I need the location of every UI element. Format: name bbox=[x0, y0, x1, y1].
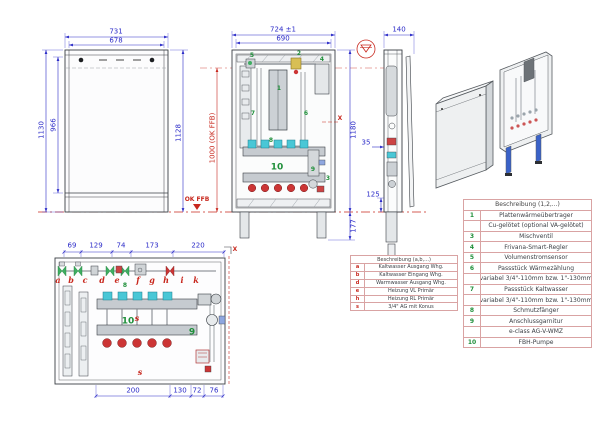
dim-side-bottom: 125 bbox=[366, 192, 379, 199]
datum-label-ok-ffb: OK FFB bbox=[185, 197, 210, 203]
datum-symbol-icon bbox=[357, 40, 375, 58]
port-letter-d: d bbox=[99, 276, 105, 284]
side-view-linework bbox=[384, 50, 414, 260]
port-letter-a: a bbox=[55, 276, 60, 284]
part-label-4: 4 bbox=[320, 57, 324, 63]
plan-part-label-8: 8 bbox=[123, 283, 127, 289]
legend-number-row: 9Anschlussgarnitur bbox=[464, 315, 591, 326]
iso-closed-cabinet bbox=[436, 81, 493, 188]
legend-number-row: 1Plattenwärmeübertrager bbox=[464, 210, 591, 221]
legend-letter-row: aKaltwasser Ausgang Whg. bbox=[351, 263, 457, 271]
plan-s-label-1: s bbox=[135, 314, 140, 322]
port-letter-e: e bbox=[114, 276, 119, 284]
front-view-linework bbox=[65, 50, 168, 212]
legend-letter-row: eHeizung VL Primär bbox=[351, 287, 457, 295]
dim-plan-top-2: 129 bbox=[89, 243, 102, 250]
dim-plan-bottom-1: 200 bbox=[126, 388, 139, 395]
legend-letter-row: s3/4" AG mit Konus bbox=[351, 302, 457, 310]
part-label-5: 5 bbox=[250, 53, 254, 59]
legend-number-row: Cu-gelötet (optional VA-gelötet) bbox=[464, 220, 591, 231]
plan-s-label-2: s bbox=[138, 368, 143, 376]
part-label-6: 6 bbox=[304, 111, 308, 117]
part-label-3: 3 bbox=[326, 176, 330, 182]
dim-open-width-outer: 724 ±1 bbox=[270, 27, 296, 34]
dim-side-offset: 35 bbox=[362, 140, 371, 147]
section-x-label-plan: X bbox=[233, 247, 238, 253]
part-label-7: 7 bbox=[251, 111, 255, 117]
dim-plan-bottom-3: 72 bbox=[193, 388, 202, 395]
legend-number-row: 6Passstück Wärmezählung bbox=[464, 262, 591, 273]
legend-letters-title: Beschreibung (a,b,...) bbox=[351, 256, 457, 263]
dim-front-height-inner: 966 bbox=[51, 118, 58, 131]
legend-number-row: 7Passstück Kaltwasser bbox=[464, 284, 591, 295]
dim-plan-top-1: 69 bbox=[68, 243, 77, 250]
port-letter-i: i bbox=[180, 276, 183, 284]
legend-number-row: variabel 3/4"-110mm bzw. 1"-130mm bbox=[464, 294, 591, 305]
legend-number-row: 8Schmutzfänger bbox=[464, 305, 591, 316]
legend-number-row: 10FBH-Pumpe bbox=[464, 337, 591, 348]
dim-plan-top-4: 173 bbox=[145, 243, 158, 250]
port-letter-f: f bbox=[136, 276, 139, 284]
dim-plan-bottom-2: 130 bbox=[173, 388, 186, 395]
open-view-linework bbox=[232, 50, 335, 238]
port-letter-c: c bbox=[83, 276, 88, 284]
legend-number-row: 5Volumenstromsensor bbox=[464, 252, 591, 263]
legend-table-letters: Beschreibung (a,b,...) aKaltwasser Ausga… bbox=[350, 255, 458, 311]
part-label-8: 8 bbox=[269, 138, 273, 144]
part-label-1: 1 bbox=[277, 86, 281, 92]
dim-plan-top-5: 220 bbox=[191, 243, 204, 250]
dim-front-height-outer: 1130 bbox=[39, 121, 46, 139]
legend-number-row: 3Mischventil bbox=[464, 231, 591, 242]
dim-front-ffb: 1000 (OK FFB) bbox=[210, 113, 217, 164]
dim-side-depth: 140 bbox=[392, 27, 405, 34]
legend-letter-row: dWarmwasser Ausgang Whg. bbox=[351, 279, 457, 287]
iso-open-cabinet bbox=[500, 52, 552, 176]
legend-letter-row: bKaltwasser Eingang Whg. bbox=[351, 271, 457, 279]
legend-letter-row: hHeizung RL Primär bbox=[351, 295, 457, 303]
plan-view-linework bbox=[55, 258, 225, 384]
plan-part-label-10: 10 bbox=[122, 318, 135, 327]
dim-front-height-right: 1128 bbox=[176, 124, 183, 142]
legend-number-row: e-class AG-V-WMZ bbox=[464, 326, 591, 337]
drawing-sheet: 731 678 1130 966 1128 1000 (OK FFB) OK F… bbox=[0, 0, 600, 424]
part-label-10: 10 bbox=[271, 164, 284, 173]
port-letter-k: k bbox=[193, 276, 199, 284]
legend-number-row: 4Frivana-Smart-Regler bbox=[464, 241, 591, 252]
section-x-label-open: X bbox=[338, 116, 343, 122]
port-letter-g: g bbox=[149, 276, 155, 284]
part-label-2: 2 bbox=[297, 51, 301, 57]
plan-part-label-9: 9 bbox=[189, 329, 195, 338]
part-label-9: 9 bbox=[311, 167, 315, 173]
dim-plan-bottom-4: 76 bbox=[210, 388, 219, 395]
dim-open-legs: 177 bbox=[351, 219, 358, 232]
dim-plan-top-3: 74 bbox=[117, 243, 126, 250]
dim-front-width-inner: 678 bbox=[109, 38, 122, 45]
legend-table-numbers: Beschreibung (1,2,...) 1Plattenwärmeüber… bbox=[463, 199, 592, 348]
port-letter-b: b bbox=[68, 276, 74, 284]
dim-open-width-inner: 690 bbox=[276, 36, 289, 43]
legend-number-row: variabel 3/4"-110mm bzw. 1"-130mm bbox=[464, 273, 591, 284]
dim-open-height: 1180 bbox=[351, 121, 358, 139]
dim-front-width-outer: 731 bbox=[109, 29, 122, 36]
port-letter-h: h bbox=[163, 276, 169, 284]
legend-numbers-title: Beschreibung (1,2,...) bbox=[464, 200, 591, 210]
